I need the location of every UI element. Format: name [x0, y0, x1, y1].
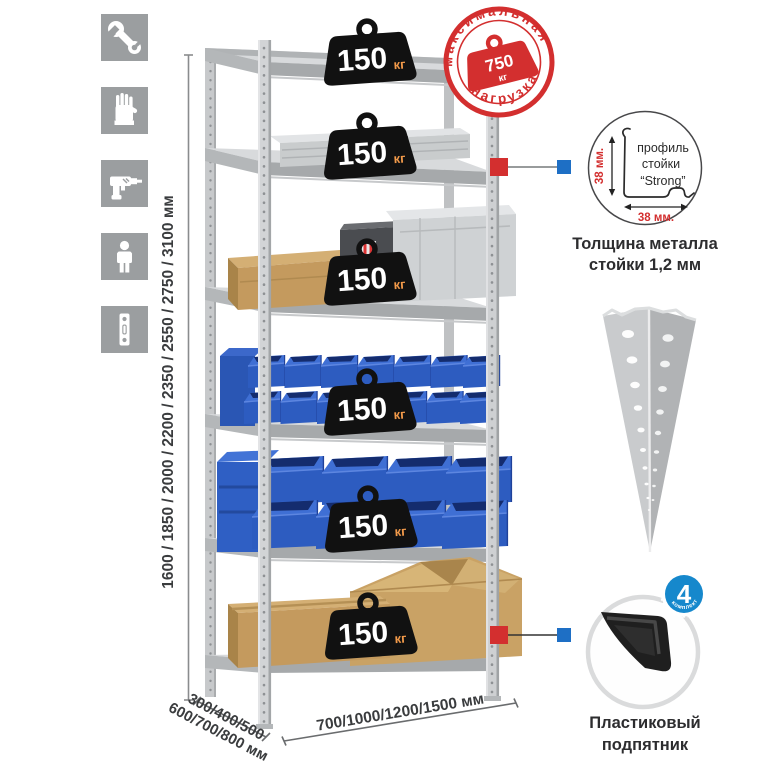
load-unit: кг — [393, 276, 407, 292]
leader-red-marker — [490, 626, 508, 644]
load-badge-1: 150 кг — [320, 18, 417, 86]
leader-bottom — [490, 626, 571, 644]
rack-upright-front-left — [256, 40, 273, 729]
profile-caption-2: стойки 1,2 мм — [589, 256, 701, 274]
included-count-badge: 4 в комплекте — [662, 572, 707, 617]
load-value: 150 — [336, 42, 388, 78]
foot-caption-1: Пластиковый — [589, 714, 700, 732]
load-badge-2: 150 кг — [320, 112, 417, 180]
profile-detail: 38 мм. 38 мм. профиль стойки “Strong” То… — [572, 112, 718, 275]
gloves-icon — [101, 87, 148, 134]
profile-dim-horizontal: 38 мм. — [638, 212, 674, 224]
load-unit: кг — [394, 630, 408, 646]
assembly-icon-column — [101, 14, 148, 353]
person-icon — [101, 233, 148, 280]
corner-post-image — [603, 308, 696, 552]
height-dimension: 1600 / 1850 / 2000 / 2200 / 2350 / 2550 … — [160, 55, 193, 700]
shelf-load-badges: 150 кг 150 кг 150 кг 150 кг 150 кг 150 к… — [320, 18, 418, 660]
leader-red-marker — [490, 158, 508, 176]
wrench-icon — [101, 14, 148, 61]
profile-label-3: “Strong” — [640, 174, 685, 188]
profile-caption-1: Толщина металла — [572, 235, 718, 253]
rack-upright-front-right — [484, 56, 501, 701]
leader-blue-marker — [557, 160, 571, 174]
load-unit: кг — [393, 406, 407, 422]
load-unit: кг — [393, 56, 407, 72]
profile-dim-vertical: 38 мм. — [594, 148, 606, 184]
leader-blue-marker — [557, 628, 571, 642]
load-unit: кг — [393, 150, 407, 166]
load-unit: кг — [394, 523, 408, 539]
load-value: 150 — [336, 392, 388, 428]
product-infographic: 1600 / 1850 / 2000 / 2200 / 2350 / 2550 … — [0, 0, 765, 765]
profile-label-2: стойки — [642, 157, 680, 171]
drill-icon — [101, 160, 148, 207]
height-dimension-label: 1600 / 1850 / 2000 / 2200 / 2350 / 2550 … — [160, 195, 177, 589]
width-dimension: 700/1000/1200/1500 мм — [282, 690, 518, 745]
plastic-foot-detail: 4 в комплекте Пластиковый подпятник — [588, 572, 707, 755]
load-value: 150 — [336, 136, 388, 172]
profile-label-1: профиль — [637, 141, 689, 155]
leader-top — [490, 158, 571, 176]
load-value: 150 — [337, 616, 389, 652]
foot-caption-2: подпятник — [602, 736, 689, 754]
perforated-profile-icon — [101, 306, 148, 353]
load-value: 150 — [336, 262, 388, 298]
load-value: 150 — [337, 509, 389, 545]
